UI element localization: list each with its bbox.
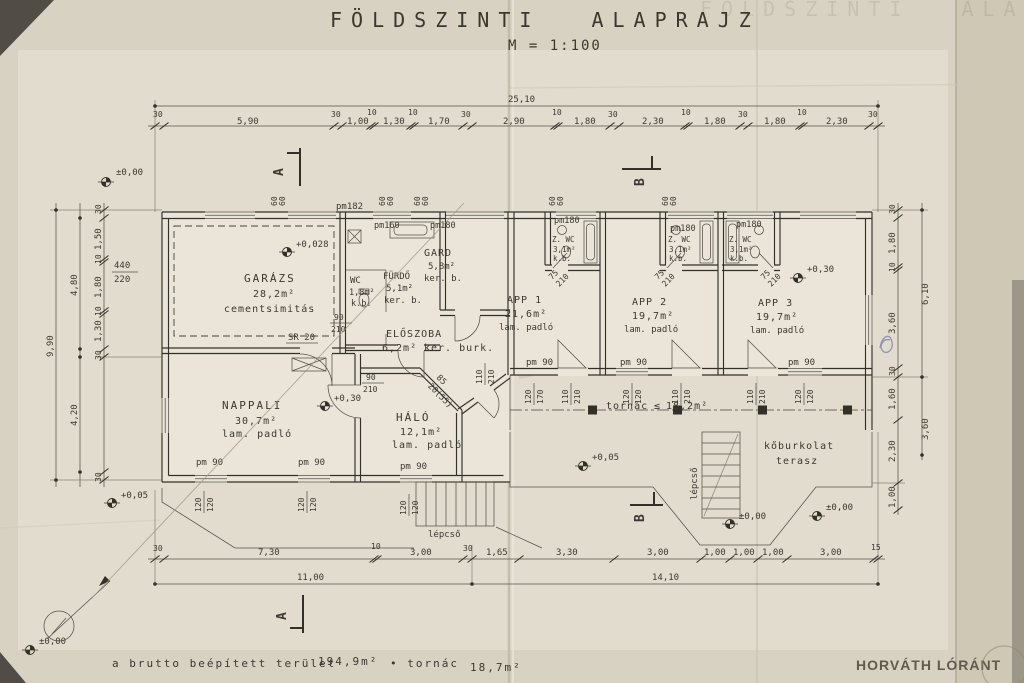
pm182-label: pm182 (336, 202, 363, 212)
level-corner: ±0,00 (39, 637, 66, 647)
app3-area: 19,7m² (756, 312, 798, 323)
svg-text:120: 120 (194, 497, 203, 512)
dim-top-10: 10 (552, 108, 562, 117)
scale-label: M = 1:100 (508, 38, 602, 54)
svg-text:110: 110 (746, 389, 755, 404)
dim-right-0: 30 (888, 204, 897, 214)
halo-name: HÁLÓ (396, 411, 431, 424)
dim-top-11: 1,80 (574, 117, 596, 127)
sill-label-3: 6060 (413, 196, 430, 206)
level-terrace1: ±0,00 (739, 512, 766, 522)
level-entry: +0,05 (592, 453, 619, 463)
zwc3-name: Z. WC (729, 235, 752, 244)
footer-note: a brutto beépített terület (112, 657, 336, 670)
app1-area: 21,6m² (505, 309, 547, 320)
svg-text:60: 60 (556, 196, 565, 206)
svg-text:110: 110 (475, 369, 484, 384)
dim-bot-2: 10 (371, 542, 381, 551)
dim-bot-3: 3,00 (410, 548, 432, 558)
svg-text:170: 170 (536, 389, 545, 404)
furdo-name: FÜRDŐ (383, 271, 410, 282)
floorplan-svg: FÖLDSZINTI ALAPRAJZ M = 1:100 FÖLDSZINTI… (0, 0, 1024, 683)
svg-text:210: 210 (331, 325, 346, 334)
app2-name: APP 2 (632, 297, 667, 308)
svg-text:60: 60 (421, 196, 430, 206)
svg-text:120: 120 (622, 389, 631, 404)
svg-text:90: 90 (366, 373, 376, 382)
dim-top-20: 30 (868, 110, 878, 119)
dim-left-6: 30 (94, 350, 103, 360)
zwc1-name: Z. WC (552, 235, 575, 244)
zwc2-area: 3,1m² (669, 245, 692, 254)
dim-top-1: 5,90 (237, 117, 259, 127)
zwc2-finish: k.b. (669, 254, 687, 263)
dim-right-4: 30 (888, 366, 897, 376)
pm180-label-app1: pm180 (554, 216, 580, 226)
svg-text:210: 210 (363, 385, 378, 394)
svg-text:120: 120 (297, 497, 306, 512)
dim-right-2: 10 (888, 262, 897, 272)
level-garage: +0,028 (296, 240, 329, 250)
pm90-label-4: pm 90 (526, 358, 553, 368)
zwc3-area: 3,1m² (730, 245, 753, 254)
dim-top-3: 1,00 (347, 117, 369, 127)
dim-top-19: 2,30 (826, 117, 848, 127)
dim-top-18: 10 (797, 108, 807, 117)
dim-right-total-0: 6,10 (921, 283, 931, 305)
dim-right-5: 1,60 (888, 388, 898, 410)
dim-bot-total-right: 14,10 (652, 573, 679, 583)
dim-right-total-1: 3,60 (921, 418, 931, 440)
halo-area: 12,1m² (400, 427, 442, 438)
dim-top-13: 2,30 (642, 117, 664, 127)
app2-finish: lam. padló (624, 324, 678, 335)
dim-top-total: 25,10 (508, 95, 535, 105)
dim-bot-0: 30 (153, 544, 163, 553)
zwc2-name: Z. WC (668, 235, 691, 244)
dim-bot-4: 30 (463, 544, 473, 553)
dim-top-4: 10 (367, 108, 377, 117)
svg-text:210: 210 (573, 389, 582, 404)
svg-text:120: 120 (309, 497, 318, 512)
dim-bot-7: 3,00 (647, 548, 669, 558)
garazs-finish: cementsimitás (224, 303, 315, 315)
gard-area: 5,8m² (428, 262, 455, 272)
dim-left-3: 1,80 (94, 276, 104, 298)
dim-left-total: 9,90 (46, 335, 56, 357)
sill-label-5: 6060 (661, 196, 678, 206)
footer-area: 194,9m² (318, 655, 378, 668)
terasz-line1: kőburkolat (764, 440, 834, 452)
gard-name: GARD (424, 248, 452, 259)
svg-text:60: 60 (386, 196, 395, 206)
dim-left-mid-1: 4,20 (70, 404, 80, 426)
dim-left-mid-0: 4,80 (70, 274, 80, 296)
pm90-label-3: pm 90 (400, 462, 427, 472)
garazs-name: GARÁZS (244, 272, 296, 285)
garazs-area: 28,2m² (253, 289, 295, 300)
dim-left-0: 30 (94, 204, 103, 214)
pm160-label: pm160 (374, 221, 400, 231)
dim-top-15: 1,80 (704, 117, 726, 127)
level-zero: ±0,00 (116, 168, 143, 178)
svg-text:110: 110 (561, 389, 570, 404)
footer-porch-area: 18,7m² (470, 661, 522, 674)
svg-text:110: 110 (671, 389, 680, 404)
app1-name: APP 1 (507, 295, 542, 306)
dim-top-0: 30 (153, 110, 163, 119)
level-nappali: +0,30 (334, 394, 361, 404)
footer-separator: • tornác (390, 657, 459, 670)
halo-finish: lam. padló (392, 439, 462, 451)
dim-top-7: 1,70 (428, 117, 450, 127)
pm90-label-5: pm 90 (620, 358, 647, 368)
sr20-label: SR 20 (288, 333, 315, 343)
sill-label-4: 6060 (548, 196, 565, 206)
house-stairs-label: lépcső (428, 529, 461, 540)
level-app3: +0,30 (807, 265, 834, 275)
eloszoba-finish: ker. burk. (424, 343, 494, 354)
dim-top-9: 2,90 (503, 117, 525, 127)
nappali-finish: lam. padló (222, 428, 292, 440)
nappali-area: 30,7m² (235, 416, 277, 427)
sill-label-2: 6060 (378, 196, 395, 206)
page-title: FÖLDSZINTI ALAPRAJZ (330, 8, 760, 32)
svg-text:120: 120 (524, 389, 533, 404)
wc-name: WC (350, 276, 361, 286)
svg-text:220: 220 (114, 275, 130, 285)
svg-text:90: 90 (334, 313, 344, 322)
pm180-label-app3: pm180 (736, 220, 762, 230)
dim-left-5: 1,30 (94, 320, 104, 342)
svg-text:440: 440 (114, 261, 130, 271)
dim-top-5: 1,30 (383, 117, 405, 127)
dim-bot-12: 15 (871, 543, 881, 552)
furdo-area: 5,1m² (386, 284, 413, 294)
terasz-line2: terasz (776, 456, 818, 467)
gard-finish: ker. b. (424, 274, 462, 284)
app2-area: 19,7m² (632, 311, 674, 322)
section-b-bottom: B (633, 514, 648, 522)
level-left: +0,05 (121, 491, 148, 501)
dim-top-17: 1,80 (764, 117, 786, 127)
dim-left-4: 10 (94, 306, 103, 316)
svg-text:120: 120 (411, 500, 420, 515)
dim-left-7: 30 (94, 472, 103, 482)
svg-text:120: 120 (794, 389, 803, 404)
eloszoba-area: 6,2m² (382, 343, 417, 354)
photographed-floorplan: FÖLDSZINTI ALAPRAJZ M = 1:100 FÖLDSZINTI… (0, 0, 1024, 683)
dim-top-12: 30 (608, 110, 618, 119)
dim-bot-8: 1,00 (704, 548, 726, 558)
architect-signature: HORVÁTH LÓRÁNT (856, 656, 1001, 673)
dim-top-14: 10 (681, 108, 691, 117)
dim-bot-5: 1,65 (486, 548, 508, 558)
svg-text:210: 210 (487, 369, 496, 384)
furdo-finish: ker. b. (384, 296, 422, 306)
dim-top-2: 30 (331, 110, 341, 119)
level-terrace2: ±0,00 (826, 503, 853, 513)
dim-right-3: 3,60 (888, 312, 898, 334)
app1-finish: lam. padló (499, 322, 553, 333)
tornac-symbol: ≤ (654, 401, 661, 412)
dim-right-7: 1,00 (888, 486, 898, 508)
title-ghost-bleed: FÖLDSZINTI ALAPRAJZ (700, 0, 1024, 21)
dim-left-2: 10 (94, 254, 103, 264)
zwc1-area: 3,1m² (553, 245, 576, 254)
sill-label-1: 6060 (270, 196, 287, 206)
svg-text:210: 210 (758, 389, 767, 404)
svg-text:120: 120 (206, 497, 215, 512)
pm90-label-6: pm 90 (788, 358, 815, 368)
svg-text:210: 210 (683, 389, 692, 404)
svg-text:120: 120 (634, 389, 643, 404)
section-a-bottom: A (275, 612, 290, 620)
dim-bot-9: 1,00 (733, 548, 755, 558)
app3-finish: lam. padló (750, 325, 804, 336)
dim-top-6: 10 (408, 108, 418, 117)
eloszoba-name: ELŐSZOBA (386, 326, 442, 340)
dim-bot-10: 1,00 (762, 548, 784, 558)
dim-bot-11: 3,00 (820, 548, 842, 558)
dim-bot-total-left: 11,00 (297, 573, 324, 583)
dim-bot-1: 7,30 (258, 548, 280, 558)
dim-left-1: 1,50 (94, 228, 104, 250)
terrace-stairs-label: lépcső (689, 467, 700, 500)
zwc1-finish: k.b. (553, 254, 571, 263)
svg-text:120: 120 (806, 389, 815, 404)
pm180-label-app2: pm180 (670, 224, 696, 234)
section-a-top: A (272, 168, 287, 176)
svg-text:120: 120 (399, 500, 408, 515)
wc-area: 1,8m² (349, 288, 375, 298)
dim-right-6: 2,30 (888, 440, 898, 462)
app3-name: APP 3 (758, 298, 793, 309)
pm90-label-2: pm 90 (298, 458, 325, 468)
dim-top-8: 30 (461, 110, 471, 119)
dim-right-1: 1,80 (888, 232, 898, 254)
section-b-top: B (633, 178, 648, 186)
zwc3-finish: k.b. (730, 254, 748, 263)
dim-bot-6: 3,30 (556, 548, 578, 558)
svg-text:60: 60 (278, 196, 287, 206)
dim-top-16: 30 (738, 110, 748, 119)
svg-text:60: 60 (669, 196, 678, 206)
